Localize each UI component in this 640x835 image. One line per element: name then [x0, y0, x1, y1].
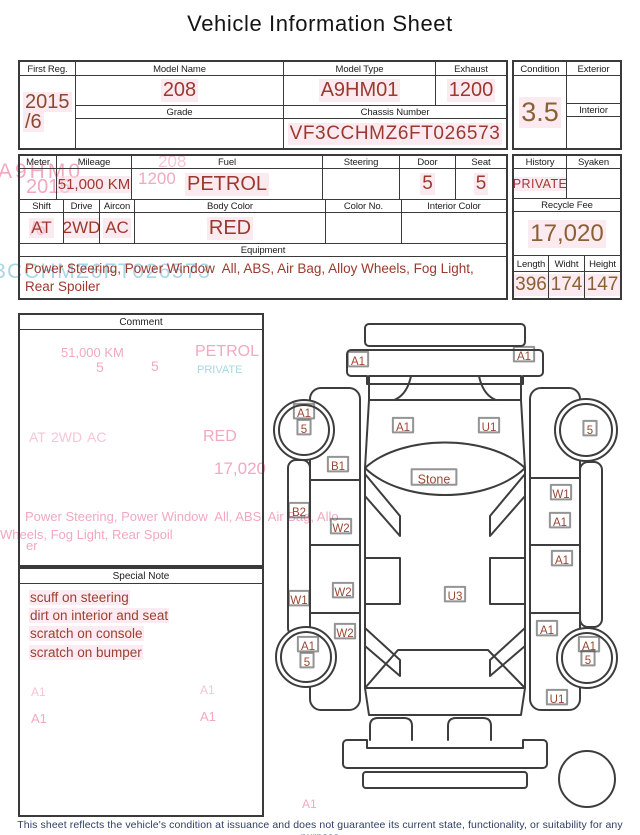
- a-pillar-right: [490, 474, 525, 536]
- history-label: History: [514, 156, 567, 169]
- recycle-fee-value: 17,020: [514, 212, 620, 255]
- shift-value: AT: [20, 213, 64, 243]
- special-note-line: scuff on steering: [29, 589, 253, 607]
- drive-label: Drive: [64, 200, 100, 213]
- model-name-value: 208: [76, 76, 284, 106]
- a-pillar-left: [365, 474, 400, 536]
- b-pillar-left: [365, 558, 400, 604]
- diagram-label: W2: [336, 628, 353, 640]
- tail-light-left: [370, 718, 412, 740]
- special-note-line: scratch on bumper: [29, 644, 253, 662]
- model-name-label: Model Name: [76, 62, 284, 76]
- drive-value: 2WD: [64, 213, 100, 243]
- meter-label: Meter: [20, 156, 57, 169]
- diagram-label: B2: [292, 507, 306, 519]
- first-reg-year: 2015: [23, 92, 72, 112]
- width-label: Widht: [549, 256, 585, 272]
- diagram-label: A1: [553, 517, 567, 529]
- comment-box: Comment: [18, 313, 264, 567]
- hood-front: [369, 376, 521, 400]
- color-no-value: [326, 213, 402, 243]
- spec-table: Meter Mileage Fuel Steering Door Seat 51…: [18, 154, 508, 300]
- width-value: 174: [549, 272, 585, 298]
- mileage-label: Mileage: [57, 156, 132, 169]
- history-row: History Syaken PRIVATE: [514, 156, 620, 199]
- history-value: PRIVATE: [514, 169, 567, 198]
- height-value: 147: [585, 272, 620, 298]
- equipment-label: Equipment: [20, 244, 506, 257]
- shift-label: Shift: [20, 200, 64, 213]
- rocker-strip-right: [580, 462, 602, 627]
- headlight-right: [479, 376, 496, 400]
- diagram-label: W1: [290, 595, 307, 607]
- vehicle-id-table: First Reg. Model Name Model Type Exhaust…: [18, 60, 508, 150]
- steering-value: [323, 169, 400, 199]
- rear-bumper: [343, 740, 547, 788]
- length-label: Length: [514, 256, 549, 272]
- diagram-label: 5: [304, 657, 310, 669]
- special-note-line: dirt on interior and seat: [29, 607, 253, 625]
- chassis-number-label: Chassis Number: [284, 106, 506, 119]
- exhaust-label: Exhaust: [436, 62, 506, 76]
- comment-header: Comment: [20, 315, 262, 330]
- recycle-fee-row: Recycle Fee 17,020: [514, 199, 620, 256]
- diagram-label: W2: [332, 523, 349, 535]
- door-value: 5: [400, 169, 456, 199]
- height-label: Height: [585, 256, 620, 272]
- model-type-value: A9HM01: [284, 76, 436, 106]
- body-color-value: RED: [135, 213, 326, 243]
- equipment-value: Power Steering, Power Window All, ABS, A…: [20, 257, 506, 300]
- special-note-header: Special Note: [20, 569, 262, 584]
- special-note-line: scratch on console: [29, 625, 253, 643]
- diagram-label: Stone: [418, 472, 451, 486]
- rocker-strip-left: [288, 460, 310, 636]
- fuel-value: PETROL: [132, 169, 323, 199]
- diagram-label: A1: [517, 351, 531, 363]
- diagram-label: A1: [555, 555, 569, 567]
- diagram-label: 5: [301, 424, 307, 436]
- first-reg-label: First Reg.: [20, 62, 76, 76]
- seat-label: Seat: [456, 156, 506, 169]
- diagram-label: A1: [540, 625, 554, 637]
- spare-tire: [559, 751, 615, 807]
- b-pillar-right: [490, 558, 525, 604]
- trunk: [365, 688, 525, 715]
- exterior-value: [567, 76, 620, 104]
- diagram-label: A1: [396, 422, 410, 434]
- syaken-label: Syaken: [567, 156, 620, 169]
- color-no-label: Color No.: [326, 200, 402, 213]
- comment-body: [20, 330, 262, 565]
- length-value: 396: [514, 272, 549, 298]
- body-color-label: Body Color: [135, 200, 326, 213]
- interior-color-label: Interior Color: [402, 200, 506, 213]
- condition-value: 3.5: [514, 76, 567, 148]
- spec-row-1: Meter Mileage Fuel Steering Door Seat 51…: [20, 156, 506, 200]
- first-reg-month: /6: [23, 112, 44, 132]
- dimensions-row: Length Widht Height 396 174 147: [514, 256, 620, 298]
- mileage-value: 51,000 KM: [57, 169, 132, 199]
- interior-color-value: [402, 213, 506, 243]
- spec-row-2: Shift Drive Aircon Body Color Color No. …: [20, 200, 506, 244]
- diagram-label: B1: [331, 461, 345, 473]
- chassis-number-value: VF3CCHMZ6FT026573: [284, 119, 506, 148]
- model-type-label: Model Type: [284, 62, 436, 76]
- diagram-label: 5: [585, 655, 591, 667]
- disclaimer-text: This sheet reflects the vehicle's condit…: [0, 819, 640, 835]
- car-body: [365, 376, 525, 740]
- aircon-value: AC: [100, 213, 135, 243]
- wheels: [274, 399, 617, 807]
- grade-label: Grade: [76, 106, 284, 119]
- seat-value: 5: [456, 169, 506, 199]
- tail-light-right: [448, 718, 491, 740]
- rear-window: [365, 650, 525, 688]
- diagram-label: W2: [334, 587, 351, 599]
- history-fee-table: History Syaken PRIVATE Recycle Fee 17,02…: [512, 154, 622, 300]
- diagram-label: A1: [301, 641, 315, 653]
- interior-value: [567, 117, 620, 148]
- special-note-box: Special Note scuff on steeringdirt on in…: [18, 567, 264, 817]
- door-label: Door: [400, 156, 456, 169]
- diagram-label: A1: [351, 356, 365, 368]
- diagram-label: U1: [550, 694, 565, 706]
- diagram-label: A1: [297, 408, 311, 420]
- aircon-label: Aircon: [100, 200, 135, 213]
- exterior-label: Exterior: [567, 62, 620, 76]
- fuel-label: Fuel: [132, 156, 323, 169]
- diagram-label: U3: [448, 591, 463, 603]
- recycle-fee-label: Recycle Fee: [514, 199, 620, 212]
- headlight-left: [394, 376, 411, 400]
- exhaust-value: 1200: [436, 76, 506, 106]
- diagram-label: 5: [587, 425, 593, 437]
- condition-table: Condition Exterior 3.5 Interior: [512, 60, 622, 150]
- grade-value: [76, 119, 284, 148]
- meter-value: [20, 169, 57, 199]
- special-note-lines: scuff on steeringdirt on interior and se…: [20, 584, 262, 667]
- page-title: Vehicle Information Sheet: [0, 11, 640, 37]
- car-diagram: A1A1A15A1U15B1StoneW1B2W2A1A1W1W2U3W2A1A…: [270, 310, 640, 815]
- steering-label: Steering: [323, 156, 400, 169]
- interior-label: Interior: [567, 104, 620, 117]
- first-reg-value: 2015 /6: [20, 76, 76, 148]
- syaken-value: [567, 169, 620, 198]
- diagram-label: W1: [552, 489, 569, 501]
- condition-label: Condition: [514, 62, 567, 76]
- vehicle-information-sheet: Vehicle Information Sheet A9HM02015/6208…: [0, 0, 640, 835]
- diagram-label: U1: [482, 422, 497, 434]
